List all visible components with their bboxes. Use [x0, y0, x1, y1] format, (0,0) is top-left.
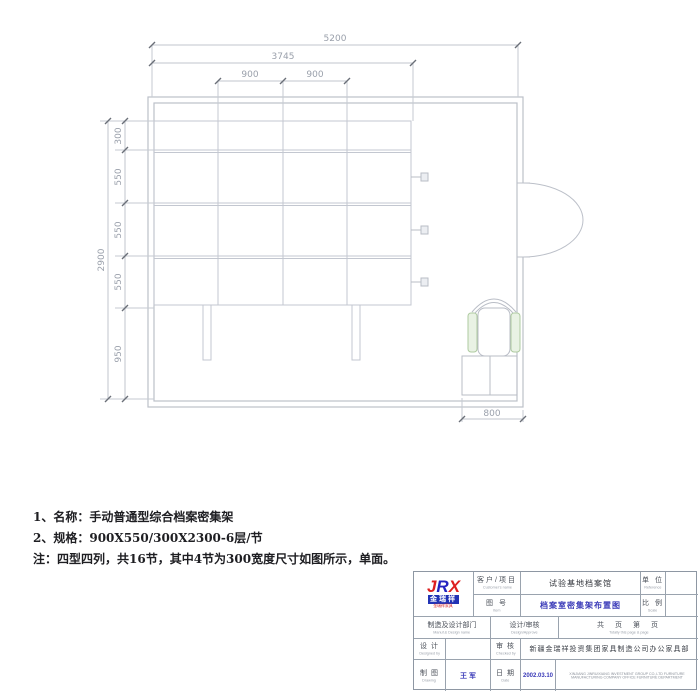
dimension-lines [108, 45, 523, 419]
dept-label-cell: 制造及设计部门 Manuf.& Design name [414, 617, 491, 639]
dim-section-a: 900 [241, 70, 258, 80]
customer-value-cell: 试验基地档案馆 [521, 572, 641, 595]
desk [462, 356, 517, 395]
dim-desk-width: 800 [483, 409, 500, 419]
jrx-logo: JRX [427, 579, 460, 594]
design-approve-cn: 设计/审核 [510, 620, 540, 630]
scale-label-en: Scale [648, 609, 657, 613]
dim-overall-width: 5200 [324, 34, 347, 44]
dim-row-5: 950 [114, 345, 124, 362]
dept-label-cn: 制造及设计部门 [428, 620, 477, 630]
checked-label-cell: 审 核 Checked by [491, 639, 521, 660]
company-en-cell: XINJIANG JINRUIXIANG INVESTMENT GROUP CO… [556, 660, 698, 691]
date-label-cn: 日 期 [496, 668, 515, 678]
dim-row-1: 300 [114, 127, 124, 144]
note-line-2: 2、规格：900X550/300X2300-6层/节 [33, 528, 395, 549]
drawing-label-en: Drawing [423, 679, 437, 683]
design-approve-en: Design/Approve [511, 631, 537, 635]
customer-label-en: Customer's name [482, 586, 511, 590]
customer-label-cn: 客户/项目 [477, 575, 517, 585]
customer-value: 试验基地档案馆 [549, 578, 612, 589]
drafter-name: 王 军 [460, 671, 476, 681]
item-label-en: Item [493, 609, 500, 613]
dim-row-2: 550 [114, 168, 124, 185]
drawing-notes: 1、名称：手动普通型综合档案密集架 2、规格：900X550/300X2300-… [33, 507, 395, 570]
design-approve-cell: 设计/审核 Design/Approve [491, 617, 559, 639]
dim-section-b: 900 [306, 70, 323, 80]
company-name-en: XINJIANG JINRUIXIANG INVESTMENT GROUP CO… [561, 672, 693, 679]
drawing-title-value: 档案室密集架布置图 [540, 600, 621, 611]
cad-sheet: 5200 3745 900 900 2900 300 550 550 550 9… [0, 0, 700, 700]
item-label-cell: 图 号 Item [474, 595, 521, 617]
date-label-en: Date [502, 679, 510, 683]
checked-label-cn: 审 核 [496, 641, 515, 651]
drawing-label-cell: 制 图 Drawing [414, 660, 446, 691]
unit-label-cn: 单 位 [642, 575, 664, 585]
logo-letter-x: X [449, 577, 460, 596]
scale-label-cn: 比 例 [642, 598, 664, 608]
drafter-cell: 王 军 [446, 660, 491, 691]
dim-row-4: 550 [114, 273, 124, 290]
pages-cell: 共 页 第 页 Totally this page & page [559, 617, 698, 639]
chair [468, 299, 520, 356]
note-line-3: 注：四型四列，共16节，其中4节为300宽度尺寸如图所示，单面。 [33, 549, 395, 570]
logo-letter-j: J [427, 577, 436, 596]
dim-shelf-width: 3745 [272, 52, 295, 62]
company-cn-cell: 新疆金瑞祥投资集团家具制造公司办公家具部 [521, 639, 698, 660]
door-opening [522, 183, 532, 257]
logo-letter-r: R [436, 577, 448, 596]
scale-label-cell: 比 例 Scale [641, 595, 666, 617]
company-name-cn: 新疆金瑞祥投资集团家具制造公司办公家具部 [530, 644, 690, 654]
dim-overall-height: 2900 [97, 248, 107, 271]
dimension-extension-lines [100, 45, 523, 422]
drawing-title-cell: 档案室密集架布置图 [521, 595, 641, 617]
dim-row-3: 550 [114, 221, 124, 238]
designed-value-cell [446, 639, 491, 660]
logo-sub-text: 金瑞祥家具 [434, 605, 454, 608]
drawing-label-cn: 制 图 [420, 668, 439, 678]
crank-handle-icons [411, 173, 428, 286]
dept-label-en: Manuf.& Design name [434, 631, 471, 635]
logo-cell: JRX 金瑞祥 金瑞祥家具 [414, 572, 474, 617]
note-line-1: 1、名称：手动普通型综合档案密集架 [33, 507, 395, 528]
designed-label-cn: 设 计 [420, 641, 439, 651]
pages-en: Totally this page & page [609, 631, 649, 635]
designed-label-cell: 设 计 Designed by [414, 639, 446, 660]
unit-value-cell [666, 572, 698, 595]
designed-label-en: Designed by [419, 652, 440, 656]
shelving-rails [203, 305, 360, 360]
date-label-cell: 日 期 Date [491, 660, 521, 691]
unit-label-cell: 单 位 Reference [641, 572, 666, 595]
title-block: JRX 金瑞祥 金瑞祥家具 客户/项目 Customer's name 试验基地… [413, 571, 697, 690]
customer-label-cell: 客户/项目 Customer's name [474, 572, 521, 595]
pages-cn: 共 页 第 页 [597, 620, 660, 630]
unit-label-en: Reference [644, 586, 661, 590]
scale-value-cell [666, 595, 698, 617]
logo-box-text: 金瑞祥 [428, 595, 459, 604]
item-label-cn: 图 号 [486, 598, 508, 608]
date-value-cell: 2002.03.10 [521, 660, 556, 691]
checked-label-en: Checked by [496, 652, 516, 656]
dimension-ticks [105, 42, 526, 422]
dimension-labels: 5200 3745 900 900 2900 300 550 550 550 9… [97, 34, 501, 419]
floor-plan-drawing: 5200 3745 900 900 2900 300 550 550 550 9… [0, 0, 700, 560]
date-value: 2002.03.10 [523, 673, 553, 679]
compact-shelving-grid [154, 121, 411, 305]
